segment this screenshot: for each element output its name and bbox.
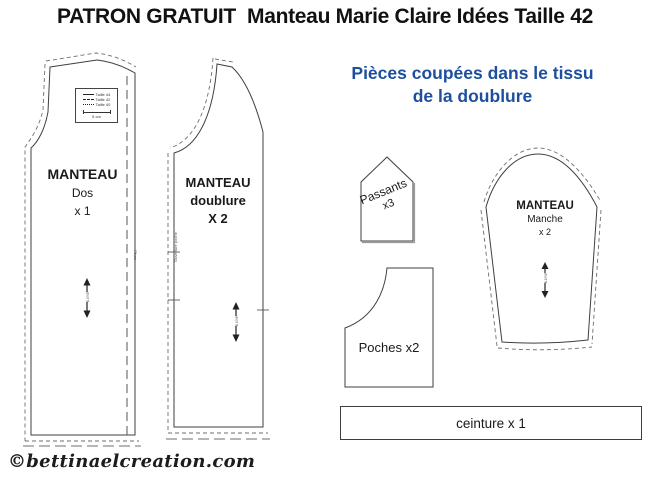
piece-subtitle: Manche	[495, 214, 595, 225]
legend-row: Taille 44	[78, 93, 115, 97]
piece-subtitle: Dos	[25, 186, 140, 200]
section-heading-line2: de la doublure	[325, 85, 620, 108]
grainline-manche: droit fil	[536, 260, 554, 300]
piece-subtitle: doublure	[168, 193, 268, 208]
line-style-swatch	[83, 104, 94, 105]
grainline-dos: droit fil	[78, 276, 96, 320]
pattern-sheet: PATRON GRATUIT Manteau Marie Claire Idée…	[0, 0, 650, 488]
pattern-piece-poches-outline	[338, 260, 440, 392]
pattern-piece-manche-outline	[473, 138, 605, 353]
legend-row: Taille 42	[78, 98, 115, 102]
scale-bar-line	[83, 110, 111, 114]
size-legend-box: Taille 44 Taille 42 Taille 40 5 cm	[75, 88, 118, 123]
piece-label-poches: Poches x2	[346, 340, 432, 355]
grainline-label: droit fil	[85, 292, 89, 302]
grainline-label: droit fil	[234, 316, 238, 326]
piece-name: MANTEAU	[168, 175, 268, 190]
piece-label-doublure: MANTEAU doublure X 2	[168, 172, 268, 226]
piece-quantity: X 2	[168, 211, 268, 226]
legend-label: Taille 42	[96, 98, 111, 102]
scale-bar: 5 cm	[83, 110, 111, 119]
scale-label: 5 cm	[92, 115, 101, 119]
legend-label: Taille 44	[96, 93, 111, 97]
piece-label-dos: MANTEAU Dos x 1	[25, 166, 140, 218]
piece-quantity: x 1	[25, 204, 140, 218]
line-style-swatch	[83, 99, 94, 100]
grainline-label: droit fil	[543, 273, 547, 283]
legend-label: Taille 40	[96, 103, 111, 107]
grainline-doublure: droit fil	[227, 300, 245, 344]
piece-label-ceinture: ceinture x 1	[456, 416, 526, 431]
piece-name: MANTEAU	[25, 166, 140, 182]
page-title: PATRON GRATUIT Manteau Marie Claire Idée…	[0, 5, 650, 29]
watermark-credit: ©bettinaelcreation.com	[8, 451, 255, 472]
notch-label: Ouverture poche	[174, 232, 178, 262]
piece-label-manche: MANTEAU Manche x 2	[495, 200, 595, 237]
piece-name: MANTEAU	[495, 200, 595, 212]
line-style-swatch	[83, 94, 94, 95]
pattern-piece-ceinture: ceinture x 1	[340, 406, 642, 440]
legend-row: Taille 40	[78, 103, 115, 107]
fold-label: Pliure	[133, 250, 137, 260]
section-heading-line1: Pièces coupées dans le tissu	[325, 62, 620, 85]
section-heading: Pièces coupées dans le tissu de la doubl…	[325, 62, 620, 108]
piece-quantity: x 2	[495, 227, 595, 237]
